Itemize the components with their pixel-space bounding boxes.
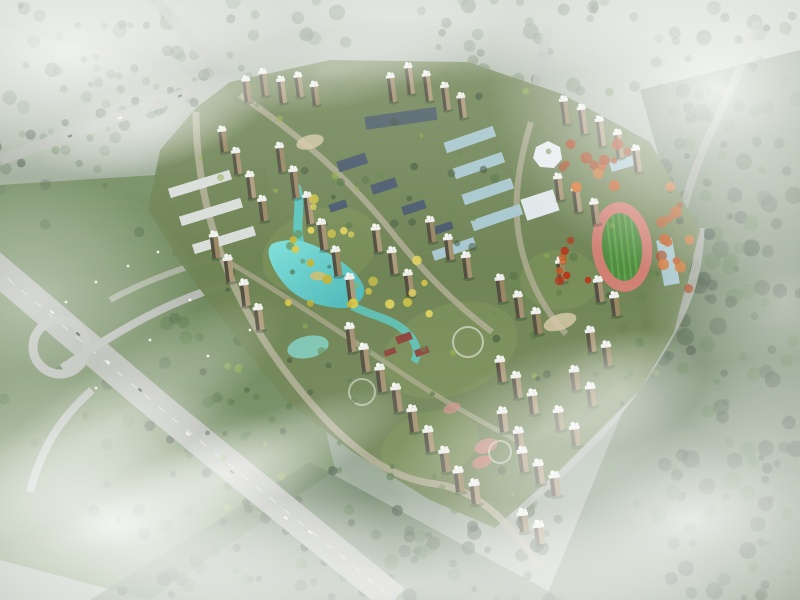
aerial-rendering (0, 0, 800, 600)
rendering-canvas (0, 0, 800, 600)
haze-veil (0, 0, 800, 600)
